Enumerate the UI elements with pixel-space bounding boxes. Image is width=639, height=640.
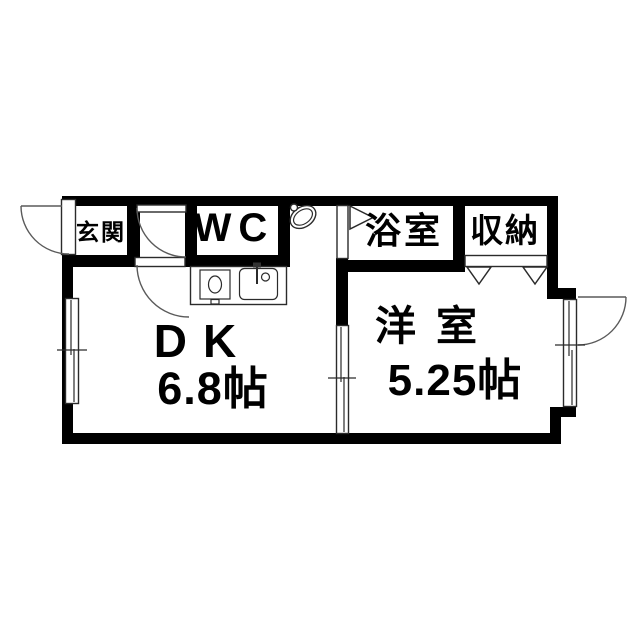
partition-window-icon: [328, 326, 356, 434]
wall-wc-right: [278, 196, 290, 267]
doorway-hall-dk: [135, 258, 185, 267]
wall-right-upper: [547, 196, 558, 299]
wall-under-entrance: [62, 255, 135, 267]
floorplan-image: 玄関 WC 浴室 収納 DK 6.8帖 洋室 5.25帖: [0, 0, 639, 640]
wall-right-lower: [550, 407, 561, 444]
exterior-door-swing-icon: [578, 297, 626, 345]
wall-under-bathroom: [336, 260, 465, 272]
western-room-label: 洋室: [375, 303, 497, 349]
dk-label: DK: [154, 315, 252, 367]
window-left-icon: [57, 299, 87, 404]
storage-door-triangle-left-icon: [467, 267, 491, 284]
wc-label: WC: [194, 206, 275, 250]
dk-door-swing-icon: [137, 265, 189, 317]
faucet-icon: [253, 263, 261, 268]
floorplan-svg: 玄関 WC 浴室 収納 DK 6.8帖 洋室 5.25帖: [0, 0, 639, 640]
hall-door-swing-icon: [137, 208, 186, 257]
bathroom-door-leaf-icon: [337, 206, 348, 259]
entrance-door-leaf-icon: [62, 200, 76, 255]
hall-door-leaf-icon: [137, 205, 186, 212]
entrance-label: 玄関: [76, 219, 126, 245]
wall-under-wc: [185, 255, 290, 267]
wall-bathroom-storage: [453, 196, 465, 272]
bathroom-label: 浴室: [365, 210, 443, 251]
dk-size-label: 6.8帖: [157, 363, 269, 414]
wall-right-step-upper: [547, 288, 576, 299]
kitchen-counter-icon: [191, 263, 287, 305]
storage-label: 収納: [470, 212, 540, 249]
storage-door-strip-icon: [465, 256, 547, 267]
window-right-icon: [555, 300, 585, 407]
storage-door-triangle-right-icon: [523, 267, 547, 284]
wall-bottom: [62, 433, 561, 444]
western-room-size-label: 5.25帖: [388, 356, 523, 405]
